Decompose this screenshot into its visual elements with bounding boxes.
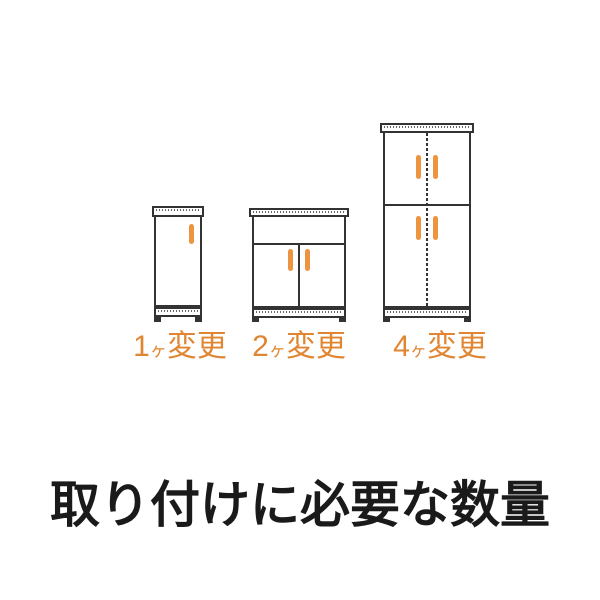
quantity-label-1: 1ヶ変更 [125, 330, 235, 368]
quantity-number: 2 [252, 330, 269, 363]
door-handle-icon [433, 155, 438, 179]
stitch-texture [256, 311, 342, 313]
cabinet-foot [154, 316, 161, 322]
cabinet-two-door-illustration [249, 208, 349, 322]
stitch-texture [158, 310, 198, 312]
cabinet-foot [252, 316, 259, 322]
door-handle-icon [288, 249, 293, 271]
door-handle-icon [416, 155, 421, 179]
door-handle-icon [189, 224, 194, 244]
page-title: 取り付けに必要な数量 [0, 474, 600, 536]
stitch-texture [387, 311, 467, 313]
cabinet-door [154, 215, 202, 307]
counter-glyph: ヶ [410, 341, 427, 360]
cabinet-foot [464, 316, 471, 322]
counter-glyph: ヶ [269, 341, 286, 360]
door-divider [298, 245, 300, 306]
cabinet-kickplate [383, 308, 471, 318]
cabinet-foot [195, 316, 202, 322]
cabinet-kickplate [252, 308, 346, 318]
product-guide-image: 1ヶ変更 2ヶ変更 4ヶ変更 取り付けに必要な数量 [0, 0, 600, 600]
cabinet-body [252, 215, 346, 308]
cabinet-foot [339, 316, 346, 322]
change-text: 変更 [167, 330, 227, 363]
door-handle-icon [416, 216, 421, 240]
door-handle-icon [433, 216, 438, 240]
counter-glyph: ヶ [150, 341, 167, 360]
cabinet-foot [383, 316, 390, 322]
change-text: 変更 [427, 330, 487, 363]
quantity-label-2: 2ヶ変更 [244, 330, 354, 368]
cabinet-body [383, 131, 471, 308]
stitch-texture [156, 209, 200, 211]
change-text: 変更 [286, 330, 346, 363]
quantity-label-4: 4ヶ変更 [385, 330, 495, 368]
door-handle-icon [305, 249, 310, 271]
quantity-number: 4 [393, 330, 410, 363]
cabinet-single-door-illustration [152, 206, 204, 322]
quantity-number: 1 [133, 330, 150, 363]
stitch-texture [253, 211, 345, 213]
stitch-texture [384, 126, 470, 128]
door-divider [426, 133, 428, 306]
middle-divider [385, 204, 469, 206]
cabinet-four-door-illustration [380, 123, 474, 322]
